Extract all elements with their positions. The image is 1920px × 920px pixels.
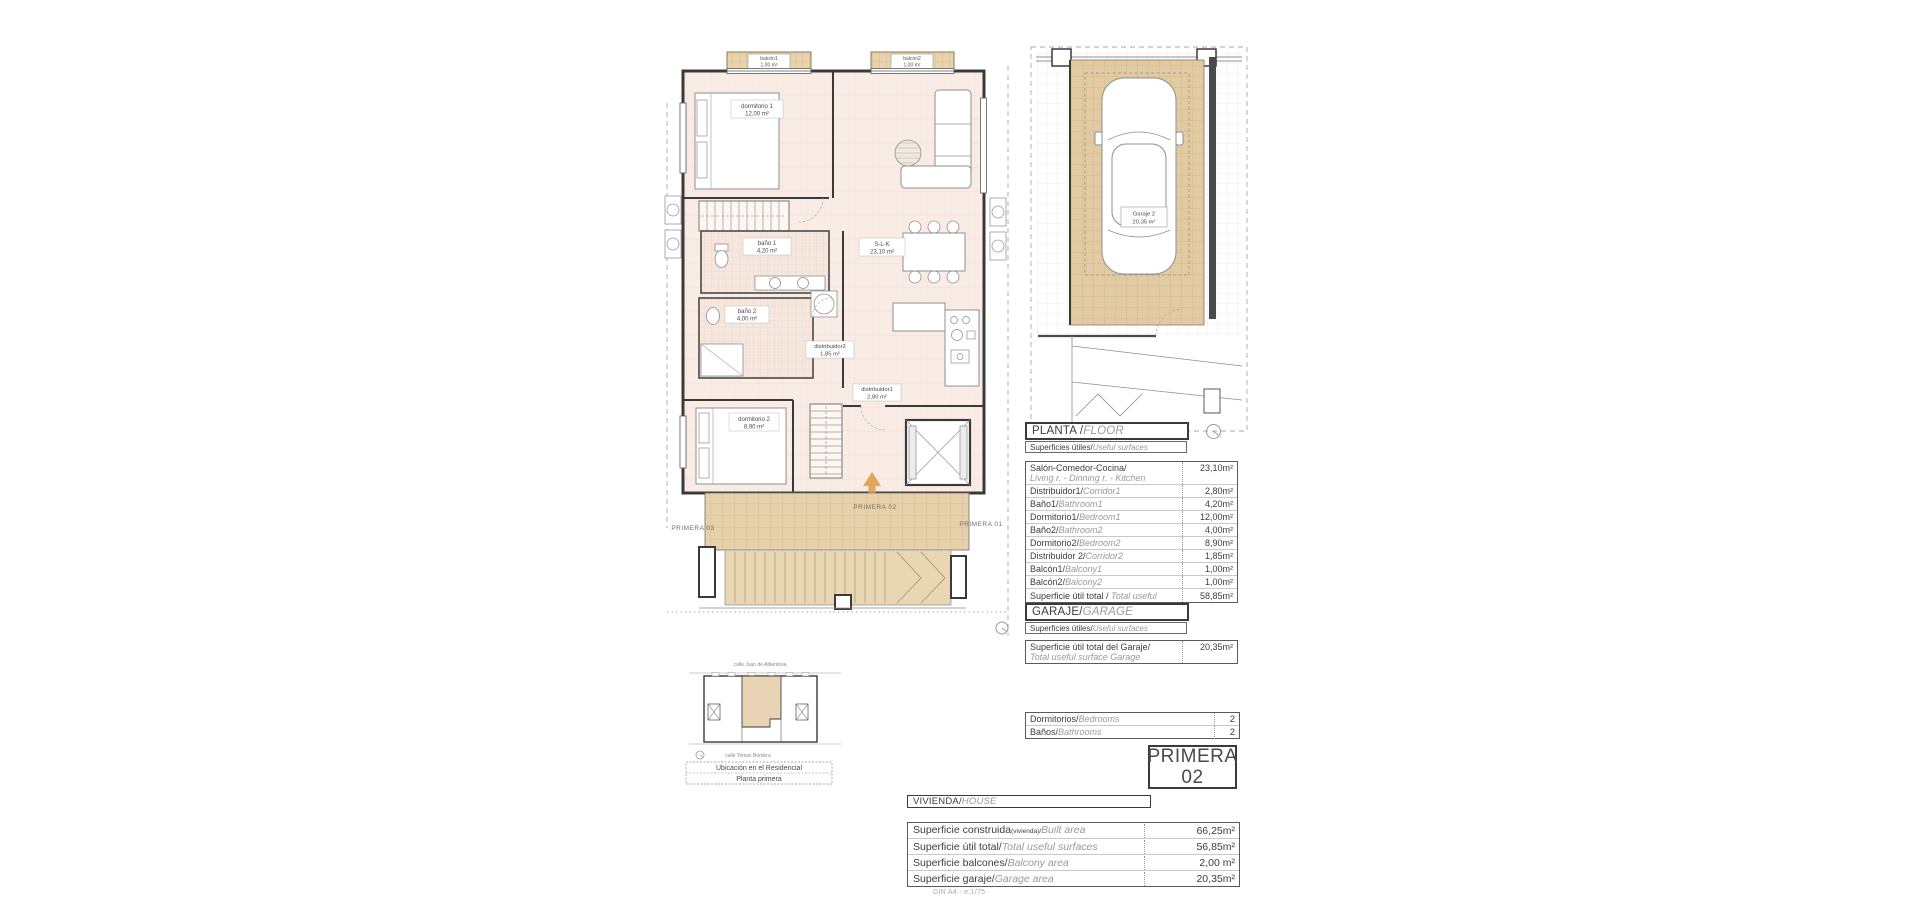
svg-text:4,20 m²: 4,20 m² — [757, 249, 777, 255]
bathroom-2: baño 2 4,00 m² — [699, 298, 813, 378]
room-label-dormitorio2: dormitorio 2 — [738, 417, 770, 423]
scale-note: DIN A4 - e:1/75 — [933, 889, 985, 896]
table-row-total: Superficie útil total / Total useful sur… — [1026, 589, 1237, 602]
table-row-garaje: Superficie garaje/Garage area 20,35m² — [908, 871, 1239, 886]
room-label-garaje2: Garaje 2 — [1133, 212, 1155, 218]
room-label-balcon1: balcón1 — [760, 56, 778, 62]
table-row-banos: Baños/Bathrooms 2 — [1026, 726, 1239, 738]
room-label-bano2: baño 2 — [738, 309, 757, 315]
table-row-balcon2: Balcón2/Balcony2 1,00m² — [1026, 576, 1237, 589]
unit-badge-line2: 02 — [1181, 767, 1203, 788]
north-indicator-icon — [1205, 423, 1222, 440]
table-row-distribuidor2: Distribuidor 2/Corridor2 1,85m² — [1026, 550, 1237, 563]
location-caption-line1: Ubicación en el Residencial — [716, 765, 802, 772]
elevator — [906, 420, 970, 485]
garaje-table-subtitle: Superficies útiles/Useful surfaces — [1025, 622, 1187, 634]
corridor-label-primera03: PRIMERA 03 — [671, 525, 714, 532]
garaje-title-en: GARAGE — [1083, 606, 1133, 618]
room-label-dormitorio2-box: dormitorio 2 8,90 m² — [729, 413, 779, 431]
north-indicator-icon — [696, 751, 704, 759]
table-row-bano1: Baño1/Bathroom1 4,20m² — [1026, 498, 1237, 511]
location-plan: calle Juan de Albentosa calle Tomás Bord… — [684, 658, 846, 792]
table-row-dormitorio1: Dormitorio1/Bedroom1 12,00m² — [1026, 511, 1237, 524]
bathroom-1: baño 1 4,20 m² — [701, 231, 829, 293]
table-row-bano2: Baño2/Bathroom2 4,00m² — [1026, 524, 1237, 537]
planta-title-en: FLOOR — [1083, 425, 1124, 437]
car — [1095, 78, 1183, 274]
room-label-dormitorio1: dormitorio 1 — [741, 104, 773, 110]
table-row-construida: Superficie construida(vivienda)/Built ar… — [908, 823, 1239, 839]
table-row-balcon1: Balcón1/Balcony1 1,00m² — [1026, 563, 1237, 576]
unit-badge-line1: PRIMERA — [1147, 746, 1237, 767]
corridor-label-primera02: PRIMERA 02 — [853, 504, 896, 511]
garaje-subtitle-en: Useful surfaces — [1093, 624, 1148, 633]
svg-text:1,00 m²: 1,00 m² — [761, 63, 778, 69]
vivienda-table-title: VIVIENDA/HOUSE — [907, 795, 1151, 808]
table-row-distribuidor1: Distribuidor1/Corridor1 2,80m² — [1026, 485, 1237, 498]
room-label-distribuidor2: distribuidor2 — [814, 344, 846, 350]
round-basin — [811, 291, 837, 317]
table-row-util-total: Superficie útil total/Total useful surfa… — [908, 839, 1239, 855]
planta-subtitle-en: Useful surfaces — [1093, 443, 1148, 452]
plan-sheet: { "floor_plan": { "balcon1": {"name": "b… — [0, 0, 1920, 920]
room-label-balcon2: balcón2 — [903, 56, 921, 62]
main-floor-plan: balcón1 1,00 m² balcón2 1,00 m² — [663, 48, 1015, 644]
garaje-table-block: GARAJE/GARAGE Superficies útiles/Useful … — [1025, 603, 1238, 664]
vivienda-table: Superficie construida(vivienda)/Built ar… — [907, 822, 1240, 887]
room-label-slk-box: S-L-K 23,10 m² — [859, 238, 905, 256]
room-label-distribuidor2-box: distribuidor2 1,85 m² — [806, 341, 854, 358]
common-corridor — [705, 493, 969, 550]
street-label-top: calle Juan de Albentosa — [734, 662, 787, 668]
room-label-dormitorio1-box: dormitorio 1 12,00 m² — [731, 100, 783, 118]
garage-right-wall — [1209, 57, 1216, 319]
table-row-salon: Salón-Comedor-Cocina/ Living r. - Dinnin… — [1026, 462, 1237, 485]
planta-table-subtitle: Superficies útiles/Useful surfaces — [1025, 441, 1187, 453]
table-row-garaje-total: Superficie útil total del Garaje/ Total … — [1026, 641, 1237, 663]
table-row-dormitorios: Dormitorios/Bedrooms 2 — [1026, 713, 1239, 726]
svg-text:23,10 m²: 23,10 m² — [870, 250, 894, 256]
planta-title-es: PLANTA / — [1032, 425, 1083, 437]
round-rug — [895, 140, 921, 166]
vivienda-title-en: HOUSE — [962, 796, 997, 807]
table-row-dormitorio2: Dormitorio2/Bedroom2 8,90m² — [1026, 537, 1237, 550]
svg-text:2,80 m²: 2,80 m² — [867, 395, 887, 401]
stairs-lower — [810, 404, 842, 478]
room-label-bano1: baño 1 — [758, 241, 777, 247]
stairs-upper — [699, 201, 789, 231]
garaje-title-es: GARAJE/ — [1032, 606, 1083, 618]
corridor-label-primera01: PRIMERA 01 — [959, 521, 1002, 528]
location-caption-line2: Planta primera — [736, 776, 782, 783]
garage-label-box: Garaje 2 20,35 m² — [1121, 207, 1167, 227]
unit-badge: PRIMERA 02 — [1148, 745, 1237, 789]
svg-text:4,00 m²: 4,00 m² — [737, 317, 757, 323]
north-indicator-icon — [996, 622, 1008, 634]
garaje-subtitle-es: Superficies útiles/ — [1030, 624, 1093, 633]
svg-text:1,00 m²: 1,00 m² — [904, 63, 921, 69]
residential-building — [704, 673, 817, 743]
room-label-distribuidor1-box: distribuidor1 2,80 m² — [853, 384, 901, 401]
svg-text:1,85 m²: 1,85 m² — [820, 352, 840, 358]
street-label-bottom: calle Tomás Bordera — [725, 753, 771, 759]
vivienda-title-es: VIVIENDA/ — [913, 796, 962, 807]
svg-text:12,00 m²: 12,00 m² — [745, 112, 769, 118]
planta-table: Salón-Comedor-Cocina/ Living r. - Dinnin… — [1025, 461, 1238, 603]
planta-table-title: PLANTA / FLOOR — [1025, 422, 1189, 440]
room-label-slk: S-L-K — [874, 242, 889, 248]
garage-plan: Garaje 2 20,35 m² — [1028, 44, 1250, 434]
table-row-balcones: Superficie balcones/Balcony area 2,00 m² — [908, 855, 1239, 871]
planta-subtitle-es: Superficies útiles/ — [1030, 443, 1093, 452]
counts-table: Dormitorios/Bedrooms 2 Baños/Bathrooms 2 — [1025, 712, 1240, 739]
svg-text:8,90 m²: 8,90 m² — [744, 425, 764, 431]
svg-text:20,35 m²: 20,35 m² — [1133, 220, 1156, 226]
planta-table-block: PLANTA / FLOOR Superficies útiles/Useful… — [1025, 422, 1238, 603]
highlighted-unit — [742, 676, 781, 727]
dining-table — [903, 221, 965, 283]
location-caption-box: Ubicación en el Residencial Planta prime… — [686, 762, 832, 784]
garaje-table-title: GARAJE/GARAGE — [1025, 603, 1189, 621]
garaje-table: Superficie útil total del Garaje/ Total … — [1025, 640, 1238, 664]
room-label-distribuidor1: distribuidor1 — [861, 387, 893, 393]
